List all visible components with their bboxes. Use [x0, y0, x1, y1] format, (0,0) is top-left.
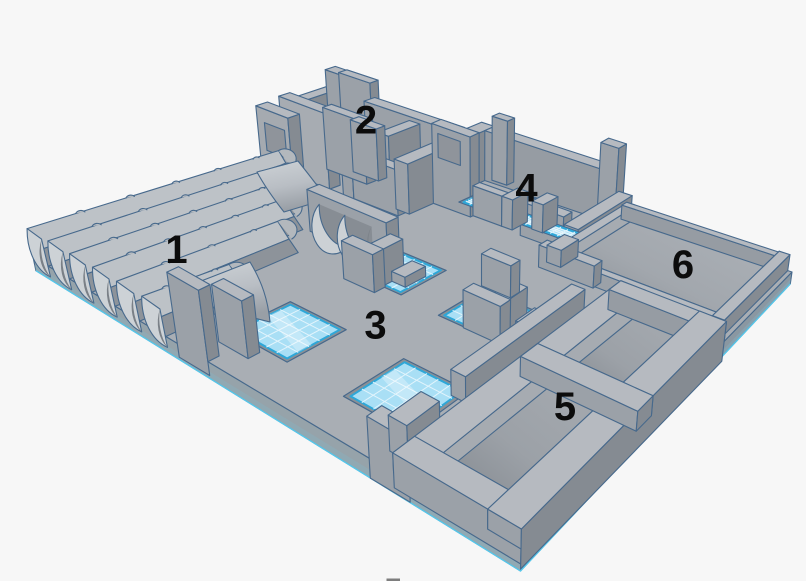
svg-text:2: 2	[355, 99, 377, 143]
svg-text:5: 5	[554, 385, 576, 429]
svg-text:4: 4	[515, 167, 538, 211]
svg-text:1: 1	[165, 228, 187, 272]
svg-text:3: 3	[364, 304, 386, 348]
svg-text:6: 6	[672, 243, 694, 287]
